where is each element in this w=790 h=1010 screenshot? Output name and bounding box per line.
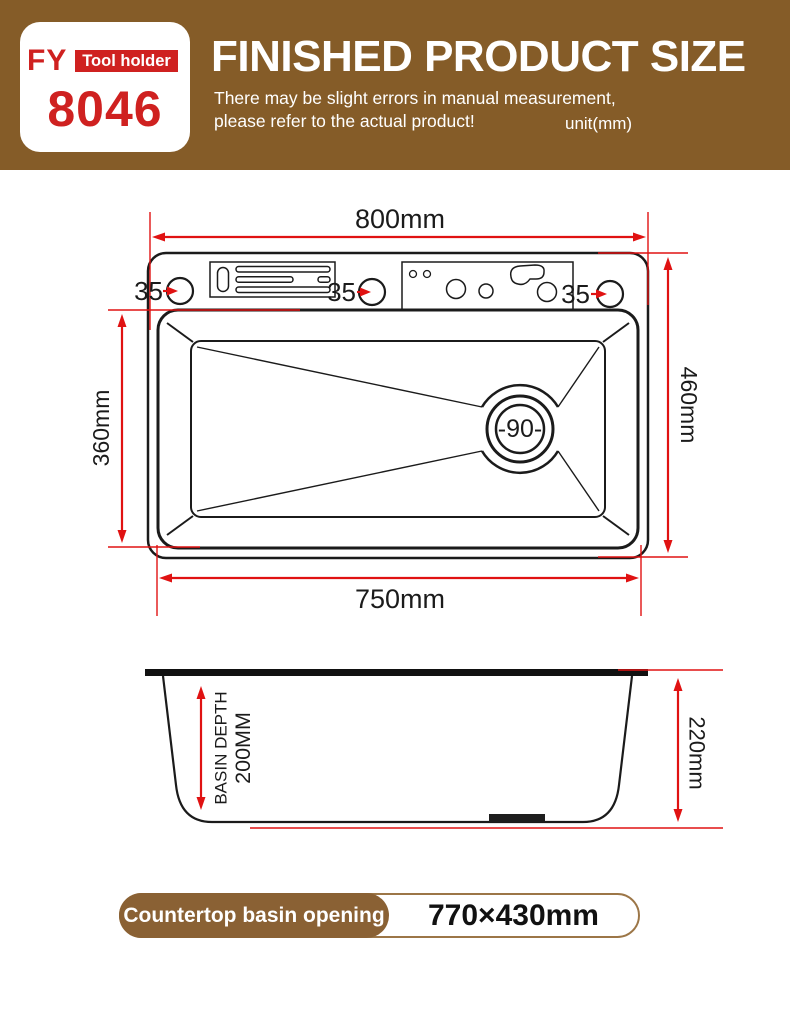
dim-460mm: 460mm	[676, 367, 702, 444]
bowl-outer	[158, 310, 638, 548]
basin-depth-label: BASIN DEPTH	[212, 691, 231, 804]
countertop-opening-badge: Countertop basin opening 770×430mm	[119, 893, 640, 938]
control-panel	[402, 262, 573, 310]
dim-220mm: 220mm	[685, 716, 710, 789]
dim-35-middle: 35	[327, 277, 356, 307]
drain-fitting	[489, 814, 545, 822]
drain-size-label: -90-	[498, 415, 542, 443]
side-view-dimensions	[201, 670, 723, 828]
top-view-dimensions	[108, 212, 688, 616]
dim-750mm: 750mm	[355, 584, 445, 614]
side-view-arrowheads	[197, 678, 683, 822]
dimension-diagram: -90-	[0, 0, 790, 1010]
waterfall-grill	[210, 262, 335, 297]
dim-360mm: 360mm	[88, 390, 114, 467]
dim-35-right: 35	[561, 279, 590, 309]
dim-800mm: 800mm	[355, 204, 445, 234]
badge-label: Countertop basin opening	[119, 893, 389, 938]
badge-value: 770×430mm	[389, 895, 638, 936]
sink-rim-bar	[145, 669, 648, 676]
dim-35-left: 35	[134, 276, 163, 306]
page: FY Tool holder 8046 FINISHED PRODUCT SIZ…	[0, 0, 790, 1010]
basin-depth-value: 200MM	[231, 712, 255, 784]
